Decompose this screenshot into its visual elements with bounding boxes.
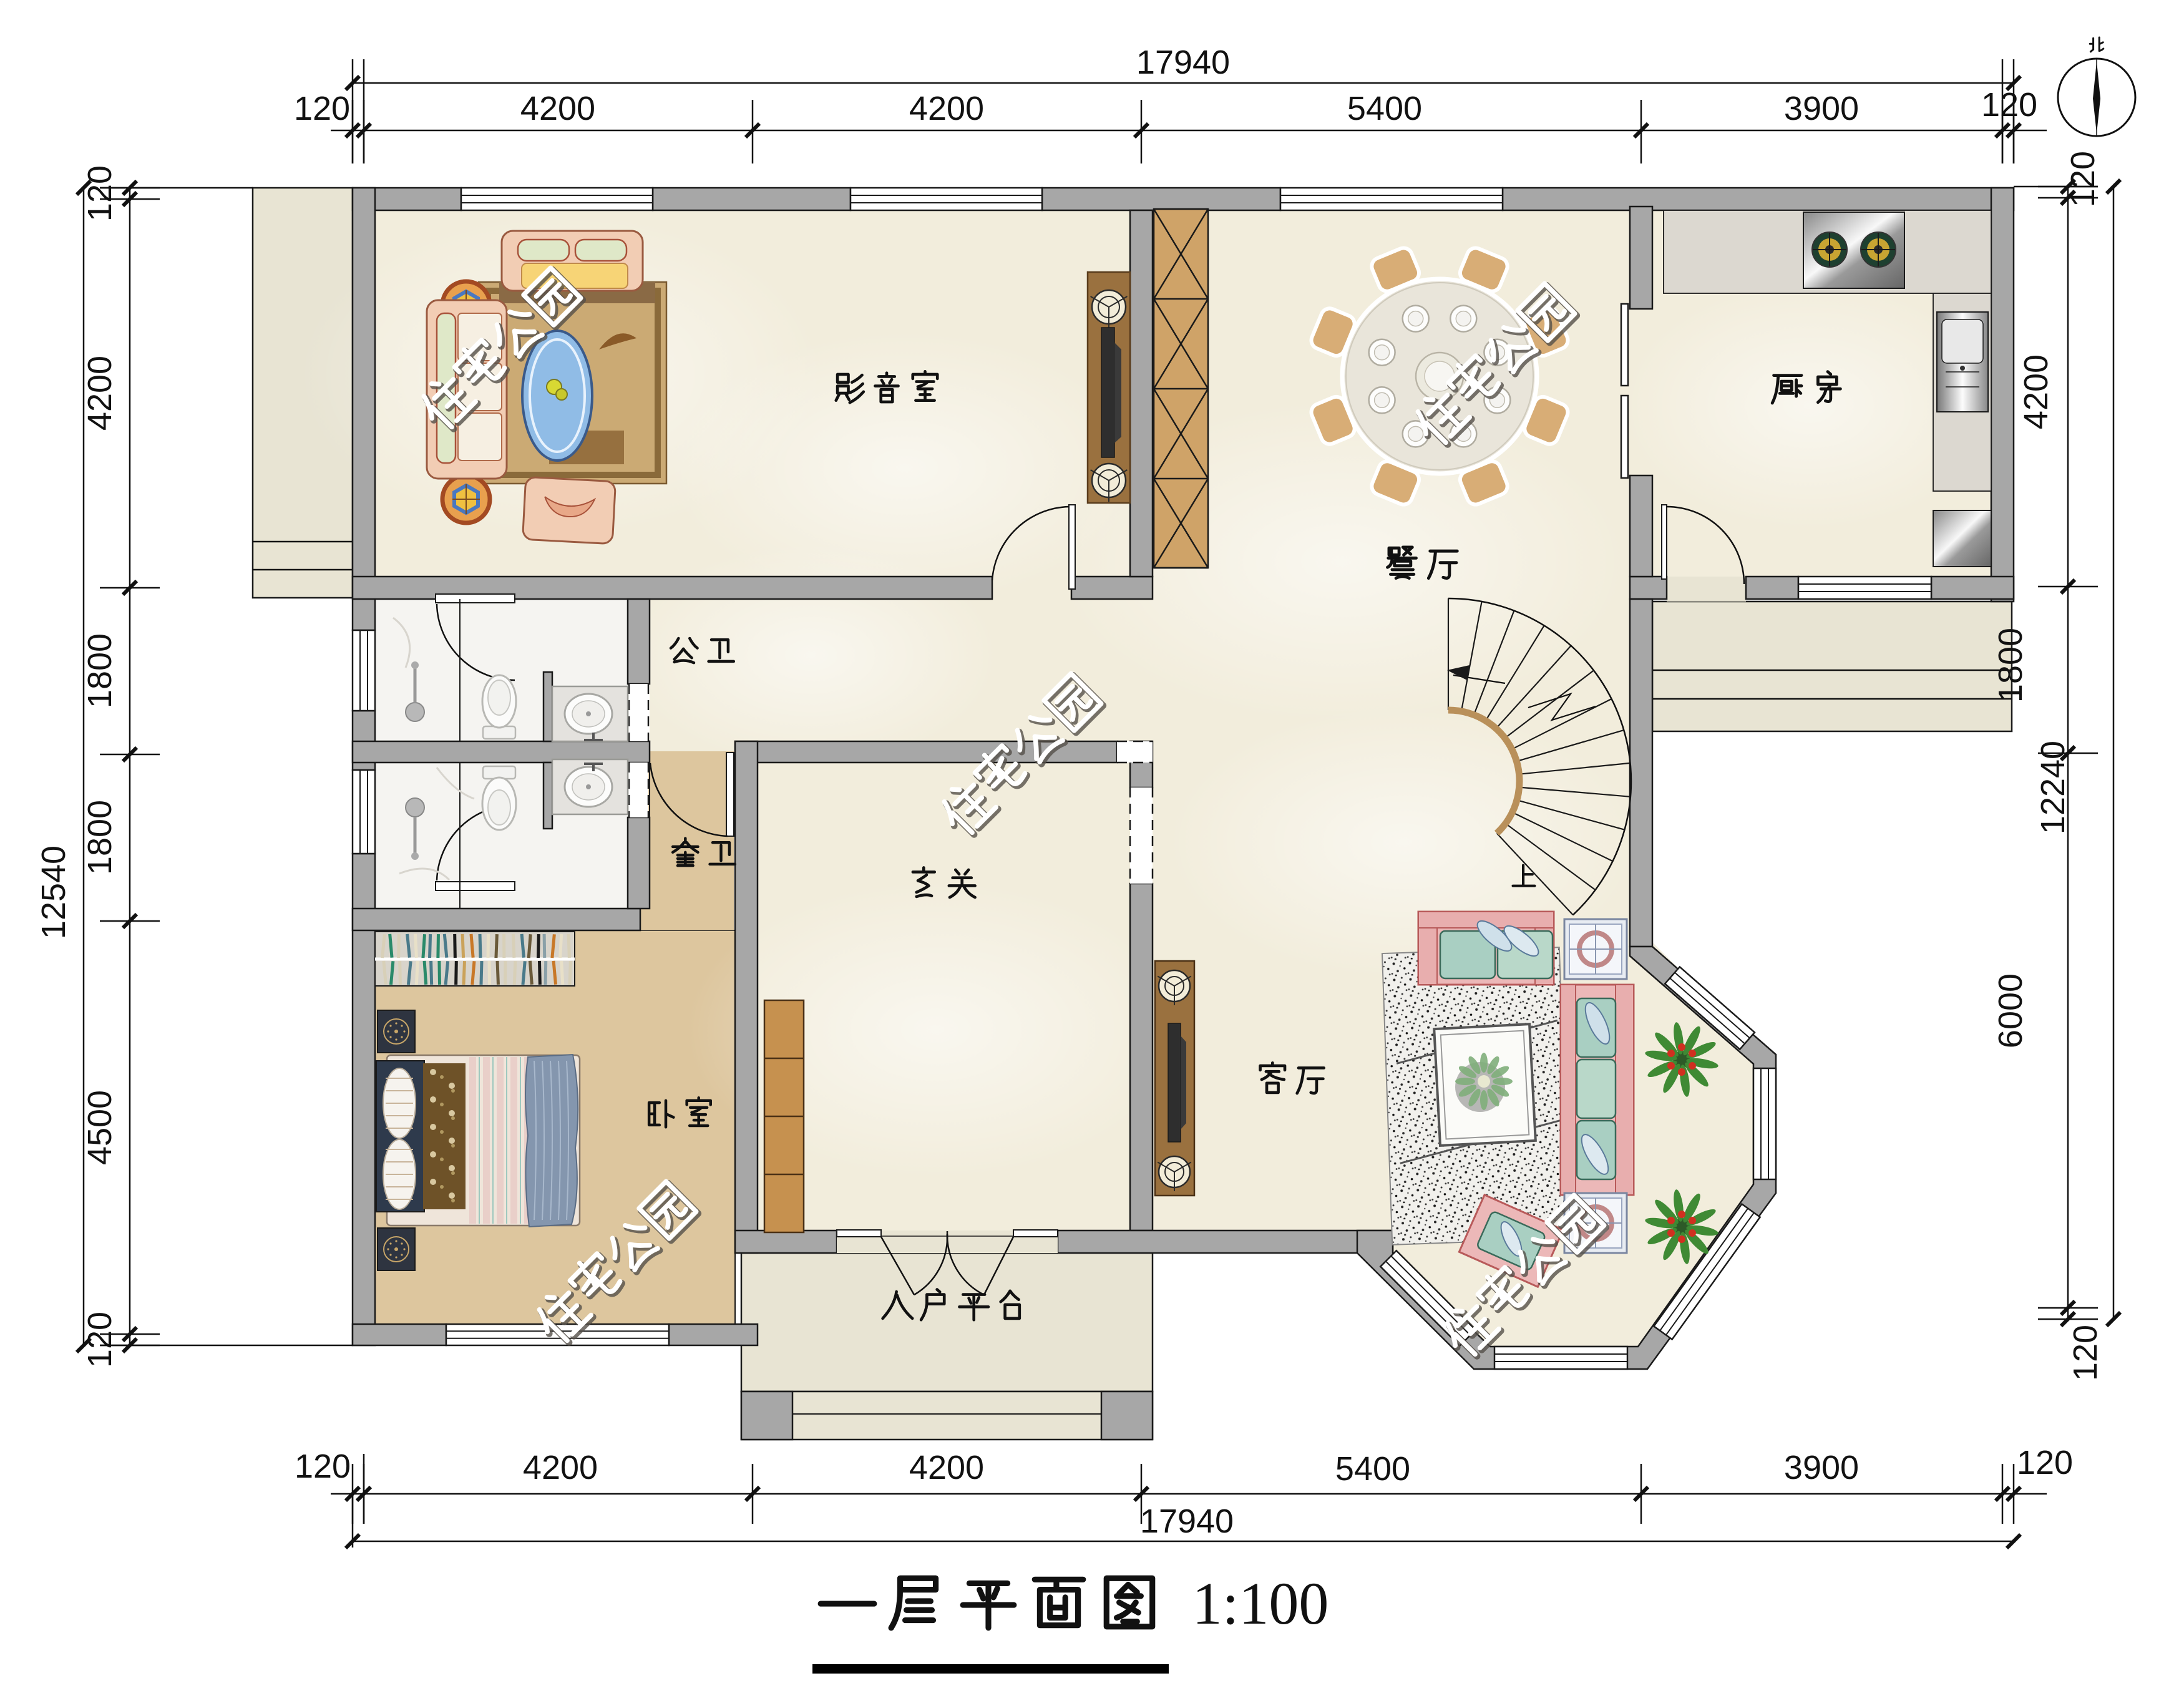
svg-text:17940: 17940 <box>1136 44 1230 81</box>
svg-text:4200: 4200 <box>81 356 119 431</box>
svg-text:120: 120 <box>294 90 350 127</box>
svg-text:4200: 4200 <box>523 1449 598 1486</box>
svg-text:1800: 1800 <box>1992 628 2029 703</box>
svg-text:120: 120 <box>1981 86 2037 124</box>
svg-text:5400: 5400 <box>1347 90 1422 127</box>
svg-text:120: 120 <box>2067 1325 2104 1381</box>
svg-text:5400: 5400 <box>1335 1450 1410 1488</box>
svg-text:12240: 12240 <box>2034 741 2072 834</box>
svg-text:1:100: 1:100 <box>1192 1570 1329 1637</box>
svg-text:1800: 1800 <box>81 800 119 875</box>
svg-text:4200: 4200 <box>520 90 595 127</box>
svg-text:12540: 12540 <box>35 846 72 939</box>
svg-text:4200: 4200 <box>909 1449 984 1486</box>
svg-text:3900: 3900 <box>1784 1449 1859 1486</box>
svg-text:3900: 3900 <box>1784 90 1859 127</box>
svg-text:6000: 6000 <box>1992 973 2029 1048</box>
svg-text:1800: 1800 <box>81 633 119 708</box>
svg-text:120: 120 <box>2064 151 2102 207</box>
svg-text:4200: 4200 <box>2017 354 2055 429</box>
svg-text:17940: 17940 <box>1140 1503 1234 1540</box>
svg-text:120: 120 <box>295 1448 351 1485</box>
svg-text:120: 120 <box>2017 1444 2073 1481</box>
svg-text:4500: 4500 <box>81 1090 119 1165</box>
svg-text:4200: 4200 <box>909 90 984 127</box>
svg-text:120: 120 <box>81 165 119 222</box>
